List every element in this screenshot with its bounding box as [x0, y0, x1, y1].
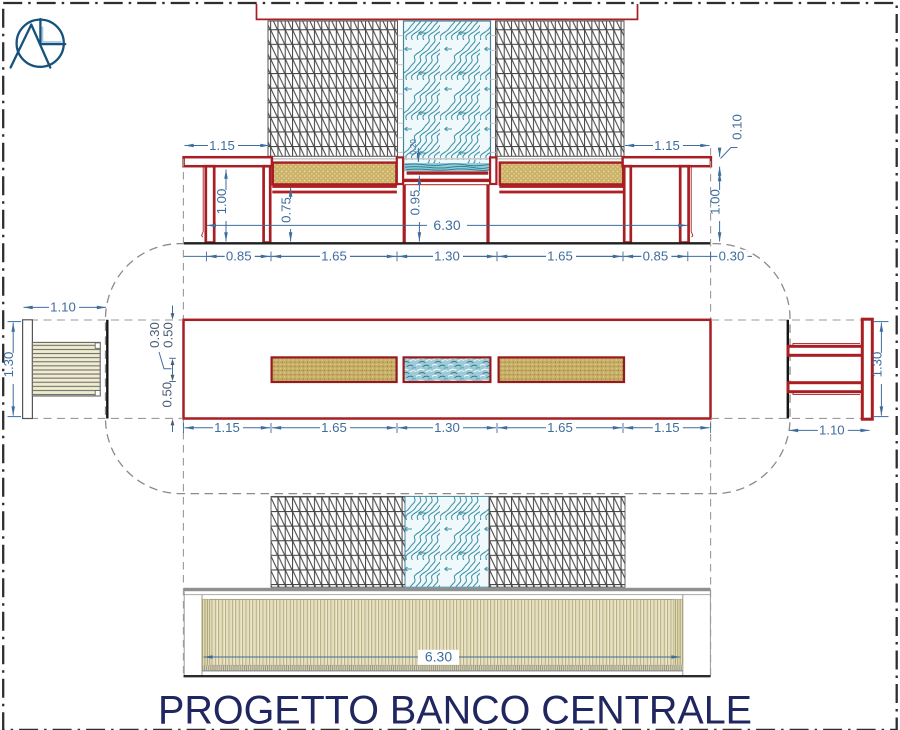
svg-text:1.15: 1.15 [209, 138, 235, 153]
svg-text:0.95: 0.95 [407, 190, 422, 216]
svg-text:1.10: 1.10 [819, 423, 845, 438]
svg-text:0.50: 0.50 [161, 322, 176, 348]
svg-text:6.30: 6.30 [425, 649, 452, 665]
svg-text:1.15: 1.15 [214, 420, 240, 435]
svg-text:1.00: 1.00 [708, 189, 723, 215]
svg-text:0.85: 0.85 [226, 249, 252, 264]
svg-text:1.65: 1.65 [321, 420, 347, 435]
svg-text:1.00: 1.00 [214, 189, 229, 215]
svg-text:1.30: 1.30 [1, 352, 16, 378]
svg-text:1.65: 1.65 [321, 249, 347, 264]
svg-text:1.15: 1.15 [654, 420, 680, 435]
svg-text:0.10: 0.10 [730, 114, 745, 140]
svg-text:0.50: 0.50 [160, 382, 175, 408]
svg-text:0.30: 0.30 [147, 322, 162, 348]
svg-text:1.65: 1.65 [547, 249, 573, 264]
svg-text:PROGETTO BANCO CENTRALE: PROGETTO BANCO CENTRALE [158, 689, 752, 730]
svg-text:1.30: 1.30 [434, 420, 460, 435]
svg-text:1.10: 1.10 [50, 300, 76, 315]
svg-text:1.15: 1.15 [654, 138, 680, 153]
svg-text:0.20: 0.20 [409, 139, 418, 155]
svg-text:0.75: 0.75 [279, 197, 294, 223]
svg-text:1.30: 1.30 [869, 352, 884, 378]
svg-text:6.30: 6.30 [433, 217, 460, 233]
svg-text:0.85: 0.85 [643, 249, 669, 264]
svg-text:1.65: 1.65 [547, 420, 573, 435]
svg-text:0.30: 0.30 [719, 249, 745, 264]
svg-text:1.30: 1.30 [434, 249, 460, 264]
